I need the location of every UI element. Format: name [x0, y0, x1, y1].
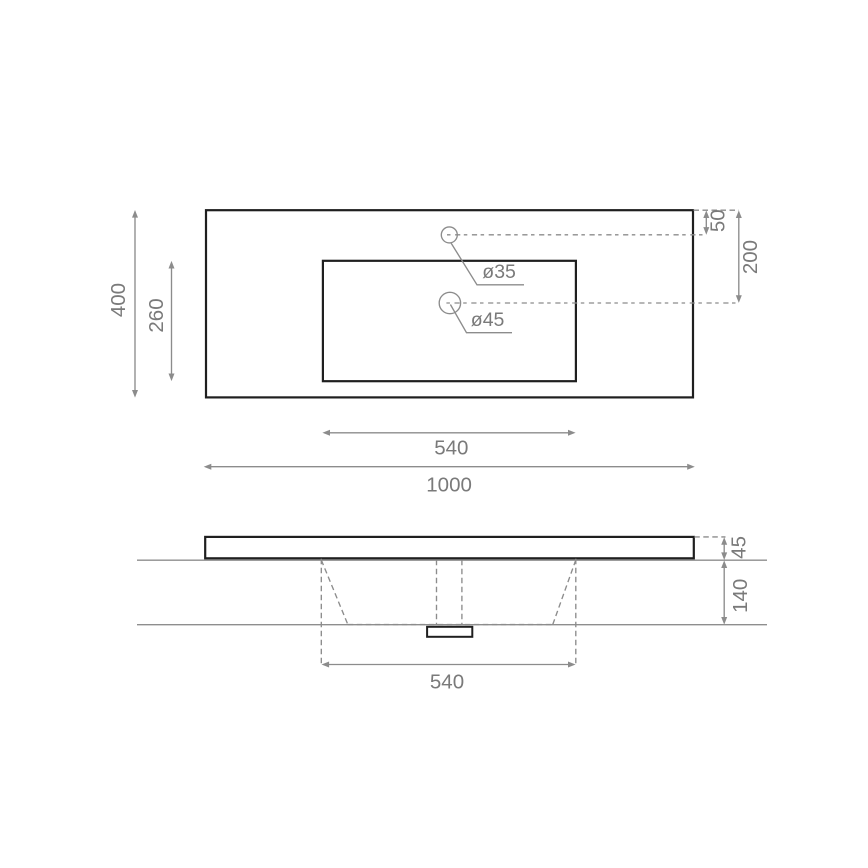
svg-text:ø35: ø35 — [482, 261, 516, 283]
svg-text:540: 540 — [434, 436, 468, 459]
svg-text:260: 260 — [145, 298, 168, 332]
svg-text:400: 400 — [107, 283, 130, 317]
svg-text:45: 45 — [727, 536, 750, 559]
svg-text:50: 50 — [707, 209, 730, 232]
svg-text:140: 140 — [729, 579, 752, 613]
svg-text:540: 540 — [430, 670, 464, 693]
svg-text:200: 200 — [739, 240, 762, 274]
svg-text:1000: 1000 — [426, 473, 472, 496]
svg-text:ø45: ø45 — [471, 309, 505, 331]
